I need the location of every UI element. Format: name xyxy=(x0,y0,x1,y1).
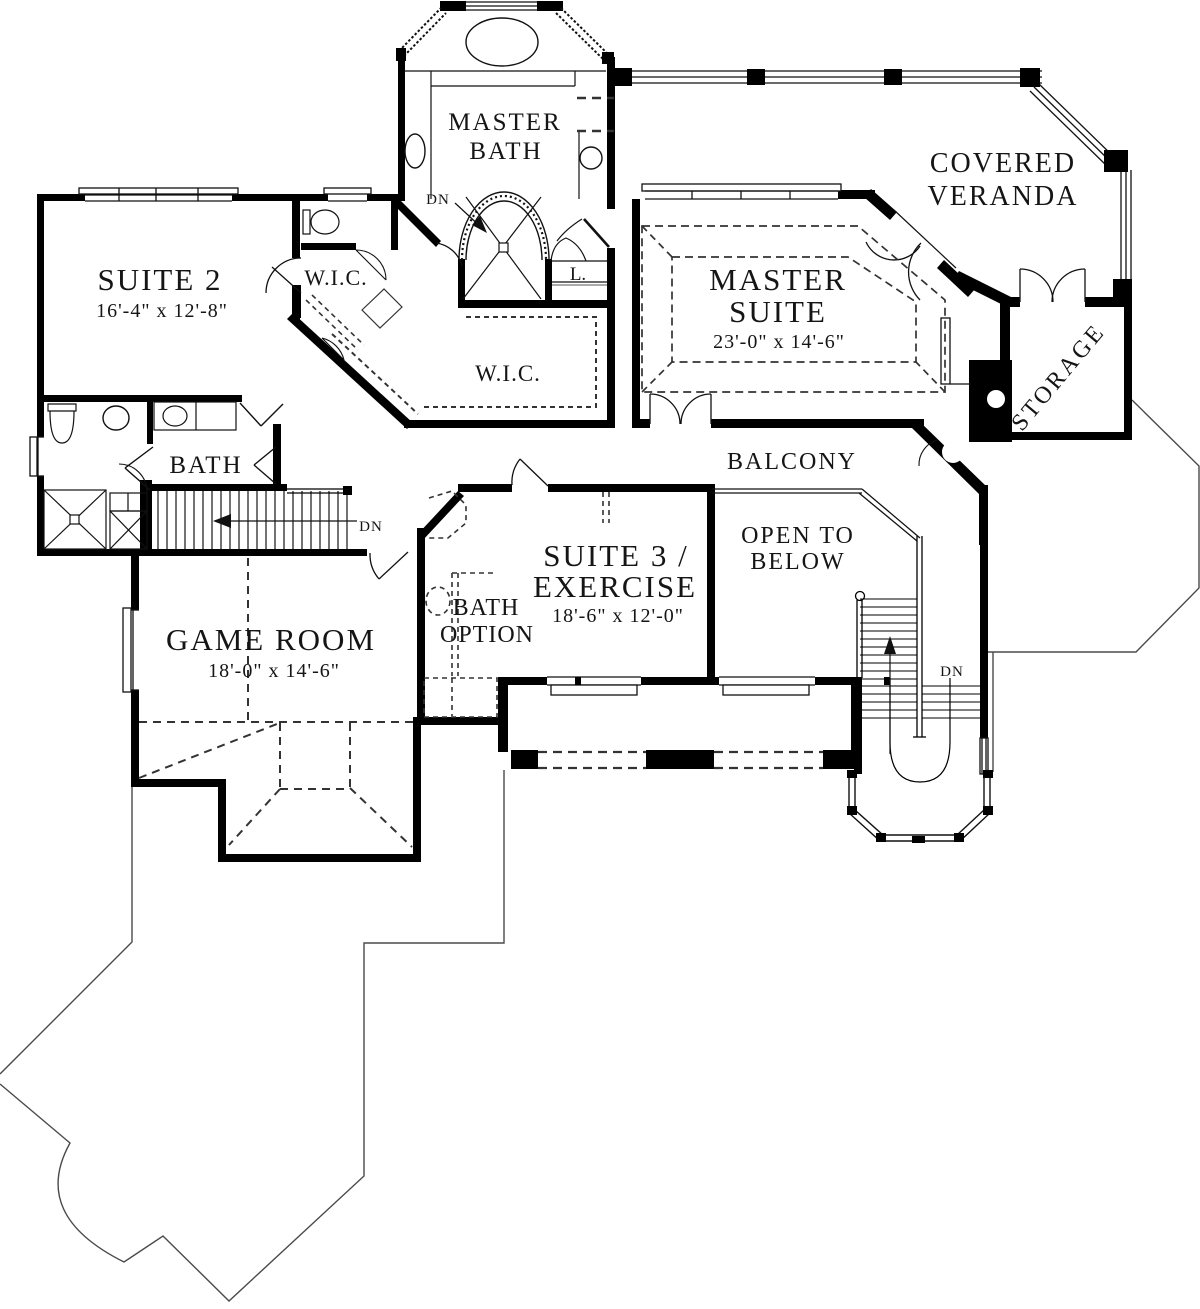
svg-text:BATH: BATH xyxy=(469,138,542,165)
svg-text:L.: L. xyxy=(570,264,586,285)
svg-text:SUITE 3 /: SUITE 3 / xyxy=(543,538,688,573)
svg-text:W.I.C.: W.I.C. xyxy=(475,361,541,386)
svg-text:BATH: BATH xyxy=(169,452,242,479)
svg-text:16'-4" x 12'-8": 16'-4" x 12'-8" xyxy=(96,300,228,322)
svg-text:BELOW: BELOW xyxy=(750,549,845,575)
svg-text:18'-6" x 12'-0": 18'-6" x 12'-0" xyxy=(552,605,684,627)
svg-text:DN: DN xyxy=(426,192,450,208)
svg-text:MASTER: MASTER xyxy=(448,109,561,136)
svg-text:OPTION: OPTION xyxy=(440,622,534,648)
svg-text:GAME ROOM: GAME ROOM xyxy=(166,622,376,657)
svg-text:23'-0" x 14'-6": 23'-0" x 14'-6" xyxy=(713,331,845,353)
svg-text:COVERED: COVERED xyxy=(930,148,1076,179)
svg-text:DN: DN xyxy=(359,519,383,535)
svg-text:OPEN TO: OPEN TO xyxy=(741,523,855,549)
svg-text:W.I.C.: W.I.C. xyxy=(304,265,367,290)
svg-text:EXERCISE: EXERCISE xyxy=(533,569,697,604)
svg-text:MASTER: MASTER xyxy=(709,262,847,297)
svg-text:SUITE 2: SUITE 2 xyxy=(97,262,222,297)
svg-text:VERANDA: VERANDA xyxy=(928,181,1079,212)
svg-text:DN: DN xyxy=(940,664,964,680)
svg-text:SUITE: SUITE xyxy=(729,294,827,329)
svg-text:18'-0" x 14'-6": 18'-0" x 14'-6" xyxy=(208,660,340,682)
svg-text:BATH: BATH xyxy=(453,595,520,621)
svg-text:BALCONY: BALCONY xyxy=(727,449,857,475)
